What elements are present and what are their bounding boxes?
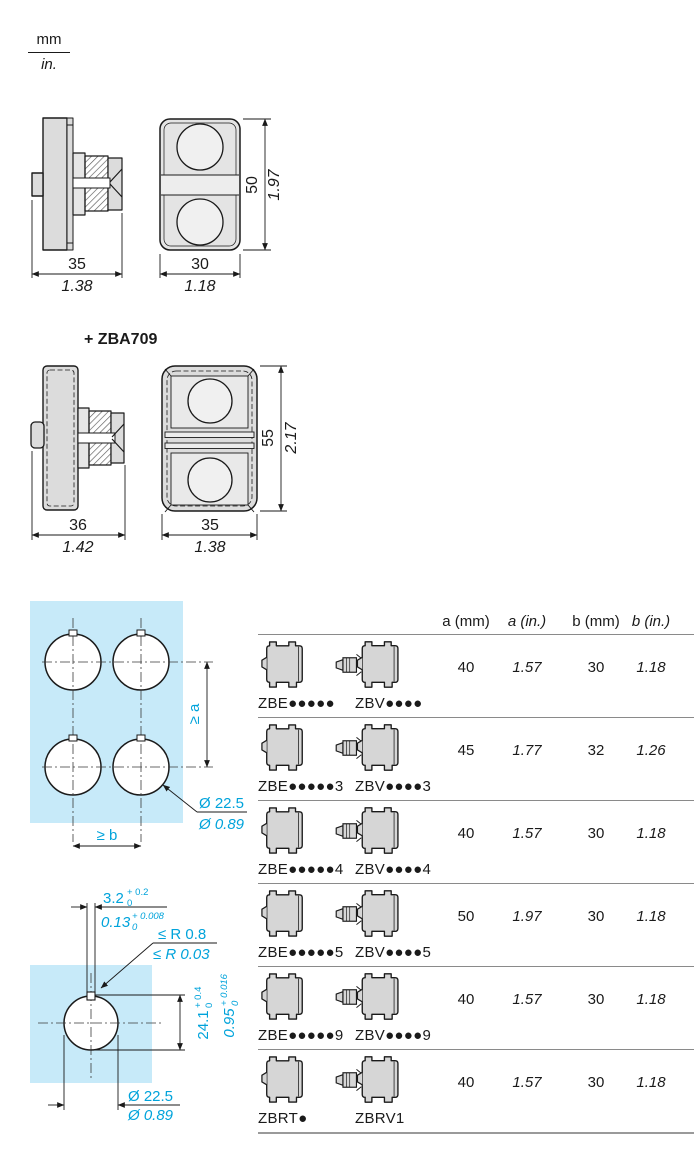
dim-side-width-in: 1.42	[62, 539, 93, 556]
figure-double-head: 35 1.38 30 1.18 50 1.97	[15, 105, 315, 305]
part-ref-right: ZBV●●●●4	[355, 861, 431, 878]
dim-notch-in: 0.13	[101, 914, 131, 931]
anti-rotation-notch	[87, 992, 95, 1000]
contact-block-lamp-image	[334, 638, 404, 692]
contact-block-image	[260, 970, 308, 1024]
contact-block-image	[260, 721, 308, 775]
table-row: ZBE●●●●●9 ZBV●●●●9 40 1.57 30 1.18	[258, 967, 694, 1050]
value-a-in: 1.97	[495, 908, 559, 925]
dimension-table: a (mm) a (in.) b (mm) b (in.) ZBE●●●●● Z…	[258, 608, 694, 1134]
dim-spacing-b: ≥ b	[97, 827, 118, 844]
value-a-mm: 40	[434, 825, 498, 842]
contact-block-lamp-image	[334, 887, 404, 941]
datasheet-page: mm in.	[0, 0, 699, 1166]
table-row: ZBE●●●●● ZBV●●●● 40 1.57 30 1.18	[258, 635, 694, 718]
part-ref-left: ZBE●●●●●5	[258, 944, 344, 961]
unit-in-label: in.	[28, 53, 70, 75]
dim-height-in-tol-sub: 0	[230, 1000, 241, 1006]
dim-side-width-in: 1.38	[61, 278, 92, 295]
front-view-drawing	[160, 119, 240, 250]
part-ref-left: ZBE●●●●●3	[258, 778, 344, 795]
dim-diameter-mm: Ø 22.5	[199, 795, 244, 812]
dim-radius-in: ≤ R 0.03	[153, 946, 210, 963]
contact-block-lamp-image	[334, 804, 404, 858]
panel-cutout-diagram: ≥ a ≥ b Ø 22.5 Ø 0.89	[15, 590, 265, 860]
value-b-in: 1.18	[619, 908, 683, 925]
value-a-in: 1.57	[495, 991, 559, 1008]
value-a-in: 1.57	[495, 825, 559, 842]
side-view-drawing	[32, 118, 122, 250]
value-b-in: 1.18	[619, 1074, 683, 1091]
drilling-detail-diagram: 3.2 + 0.2 0 0.13 + 0.008 0 ≤ R 0.8 ≤ R 0…	[15, 875, 275, 1135]
value-a-mm: 45	[434, 742, 498, 759]
table-row: ZBE●●●●●4 ZBV●●●●4 40 1.57 30 1.18	[258, 801, 694, 884]
zba709-label: + ZBA709	[84, 331, 157, 349]
dim-side-width-mm: 36	[69, 517, 87, 534]
part-ref-left: ZBE●●●●●9	[258, 1027, 344, 1044]
table-row: ZBE●●●●●5 ZBV●●●●5 50 1.97 30 1.18	[258, 884, 694, 967]
dim-front-height-mm: 55	[260, 429, 277, 447]
dim-height-mm-tol-sub: 0	[204, 1003, 215, 1008]
part-ref-left: ZBE●●●●●4	[258, 861, 344, 878]
part-ref-right: ZBV●●●●3	[355, 778, 431, 795]
dim-notch-in-tol-sub: 0	[132, 922, 138, 933]
part-ref-left: ZBRT●	[258, 1110, 307, 1127]
dim-radius-mm: ≤ R 0.8	[158, 926, 206, 943]
value-a-in: 1.57	[495, 659, 559, 676]
panel-surface	[30, 601, 183, 823]
dim-front-width-in: 1.18	[184, 278, 215, 295]
dim-front-height-in: 2.17	[283, 421, 300, 454]
dim-diameter-in: Ø 0.89	[127, 1107, 174, 1124]
dim-front-height-in: 1.97	[266, 168, 283, 200]
value-a-in: 1.77	[495, 742, 559, 759]
part-ref-right: ZBV●●●●5	[355, 944, 431, 961]
unit-mm-label: mm	[28, 30, 70, 53]
value-a-mm: 40	[434, 659, 498, 676]
contact-block-image	[260, 638, 308, 692]
value-b-in: 1.26	[619, 742, 683, 759]
dim-height-mm-tol-sup: + 0.4	[193, 987, 204, 1008]
dim-spacing-a: ≥ a	[186, 703, 203, 724]
header-b-in: b (in.)	[619, 613, 683, 630]
contact-block-lamp-image	[334, 721, 404, 775]
table-header: a (mm) a (in.) b (mm) b (in.)	[258, 608, 694, 635]
dim-side-width-mm: 35	[68, 256, 86, 273]
dim-front-width-mm: 30	[191, 256, 209, 273]
table-row: ZBE●●●●●3 ZBV●●●●3 45 1.77 32 1.26	[258, 718, 694, 801]
dim-notch-mm: 3.2	[103, 890, 124, 907]
unit-legend: mm in.	[28, 30, 70, 76]
dim-notch-mm-tol-sup: + 0.2	[127, 887, 148, 898]
front-view-drawing	[162, 366, 257, 512]
figure-double-head-boot: 36 1.42 35 1.38 55 2.17	[15, 358, 315, 570]
table-row: ZBRT● ZBRV1 40 1.57 30 1.18	[258, 1050, 694, 1134]
contact-block-lamp-image	[334, 1053, 404, 1107]
value-a-mm: 50	[434, 908, 498, 925]
dim-height-in-tol-sup: + 0.016	[219, 973, 230, 1006]
part-ref-right: ZBV●●●●9	[355, 1027, 431, 1044]
header-a-in: a (in.)	[495, 613, 559, 630]
value-b-in: 1.18	[619, 659, 683, 676]
contact-block-image	[260, 804, 308, 858]
dim-height-mm: 24.1	[195, 1010, 212, 1039]
contact-block-lamp-image	[334, 970, 404, 1024]
contact-block-image	[260, 887, 308, 941]
value-b-in: 1.18	[619, 825, 683, 842]
dim-notch-mm-tol-sub: 0	[127, 898, 132, 909]
dim-notch-in-tol-sup: + 0.008	[132, 911, 165, 922]
part-ref-right: ZBRV1	[355, 1110, 405, 1127]
dim-diameter-mm: Ø 22.5	[128, 1088, 173, 1105]
value-a-mm: 40	[434, 1074, 498, 1091]
dim-front-height-mm: 50	[244, 176, 261, 194]
part-ref-left: ZBE●●●●●	[258, 695, 335, 712]
dim-height-in-group: 0.95 + 0.016 0	[219, 973, 241, 1037]
value-a-mm: 40	[434, 991, 498, 1008]
value-a-in: 1.57	[495, 1074, 559, 1091]
dim-height-in: 0.95	[221, 1008, 238, 1038]
value-b-in: 1.18	[619, 991, 683, 1008]
dim-diameter-in: Ø 0.89	[198, 816, 245, 833]
side-view-drawing	[31, 366, 124, 510]
dim-height-mm-group: 24.1 + 0.4 0	[193, 987, 215, 1040]
dim-front-width-in: 1.38	[194, 539, 225, 556]
part-ref-right: ZBV●●●●	[355, 695, 423, 712]
contact-block-image	[260, 1053, 308, 1107]
dim-front-width-mm: 35	[201, 517, 219, 534]
header-a-mm: a (mm)	[434, 613, 498, 630]
